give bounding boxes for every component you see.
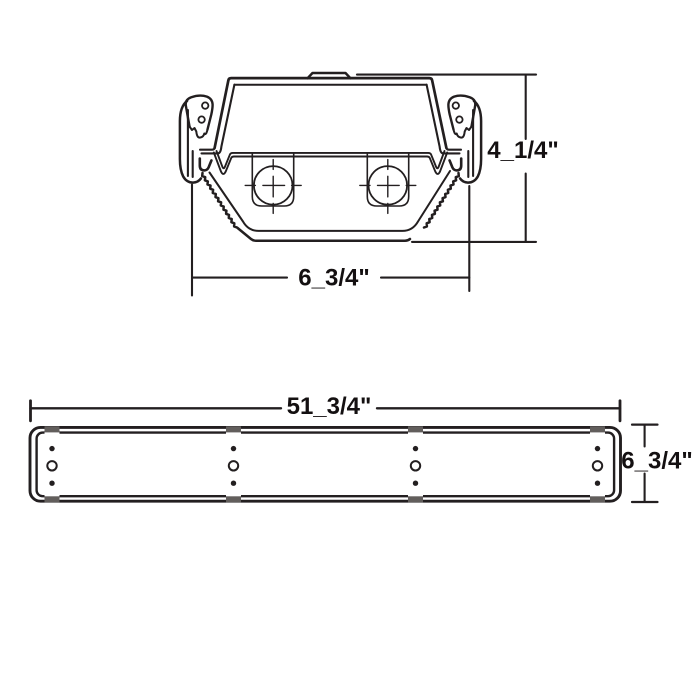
svg-text:51_3/4": 51_3/4" <box>287 393 372 420</box>
svg-text:6_3/4": 6_3/4" <box>298 264 369 291</box>
svg-text:4_1/4": 4_1/4" <box>487 137 558 164</box>
svg-text:6_3/4": 6_3/4" <box>621 448 692 475</box>
